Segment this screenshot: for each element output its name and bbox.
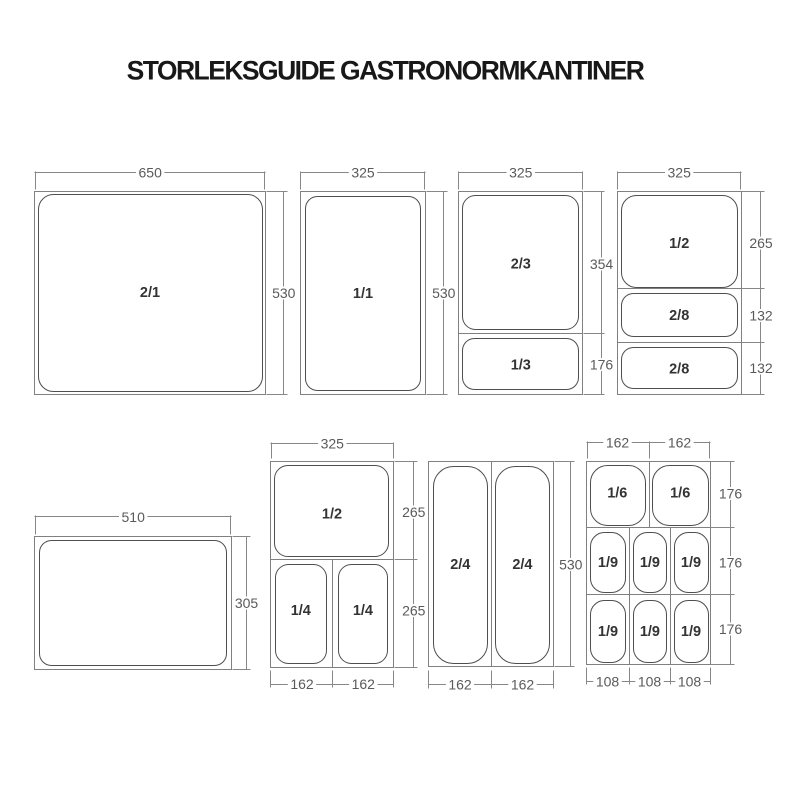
svg-text:650: 650 xyxy=(139,165,163,181)
svg-text:510: 510 xyxy=(122,509,146,525)
svg-text:176: 176 xyxy=(719,621,743,637)
svg-text:1/4: 1/4 xyxy=(291,603,311,619)
svg-text:1/9: 1/9 xyxy=(598,624,618,640)
svg-text:530: 530 xyxy=(272,285,296,301)
svg-text:176: 176 xyxy=(590,357,614,373)
svg-text:2/3: 2/3 xyxy=(511,257,531,273)
svg-text:1/9: 1/9 xyxy=(640,624,660,640)
svg-text:530: 530 xyxy=(432,285,456,301)
svg-text:176: 176 xyxy=(719,486,743,502)
svg-text:2/4: 2/4 xyxy=(450,557,470,573)
svg-text:162: 162 xyxy=(668,435,692,451)
svg-text:325: 325 xyxy=(668,165,692,181)
svg-text:1/9: 1/9 xyxy=(640,555,660,571)
svg-text:2/8: 2/8 xyxy=(669,362,689,378)
svg-text:162: 162 xyxy=(448,677,472,693)
svg-text:1/2: 1/2 xyxy=(669,236,689,252)
svg-text:305: 305 xyxy=(235,595,259,611)
svg-text:530: 530 xyxy=(559,557,583,573)
svg-text:108: 108 xyxy=(638,674,662,690)
svg-text:354: 354 xyxy=(590,256,614,272)
svg-text:162: 162 xyxy=(352,676,376,692)
svg-text:1/4: 1/4 xyxy=(353,603,373,619)
svg-text:2/1: 2/1 xyxy=(140,285,160,301)
svg-text:1/6: 1/6 xyxy=(670,486,690,502)
svg-text:1/9: 1/9 xyxy=(681,555,701,571)
svg-text:1/6: 1/6 xyxy=(607,486,627,502)
svg-text:162: 162 xyxy=(606,435,630,451)
svg-text:132: 132 xyxy=(749,308,773,324)
svg-text:176: 176 xyxy=(719,555,743,571)
svg-text:108: 108 xyxy=(678,674,702,690)
svg-text:132: 132 xyxy=(749,360,773,376)
svg-text:108: 108 xyxy=(596,674,620,690)
svg-text:STORLEKSGUIDE GASTRONORMKANTIN: STORLEKSGUIDE GASTRONORMKANTINER xyxy=(127,56,645,86)
svg-text:1/3: 1/3 xyxy=(511,358,531,374)
svg-text:1/2: 1/2 xyxy=(322,507,342,523)
svg-text:1/9: 1/9 xyxy=(681,624,701,640)
svg-text:325: 325 xyxy=(321,436,345,452)
svg-text:2/4: 2/4 xyxy=(512,557,532,573)
svg-text:162: 162 xyxy=(511,677,535,693)
svg-text:325: 325 xyxy=(351,165,375,181)
svg-text:1/1: 1/1 xyxy=(353,286,373,302)
svg-text:265: 265 xyxy=(749,235,773,251)
svg-text:325: 325 xyxy=(509,165,533,181)
svg-text:162: 162 xyxy=(290,676,314,692)
svg-text:265: 265 xyxy=(402,603,426,619)
svg-text:1/9: 1/9 xyxy=(598,555,618,571)
svg-text:2/8: 2/8 xyxy=(669,308,689,324)
svg-text:265: 265 xyxy=(402,504,426,520)
